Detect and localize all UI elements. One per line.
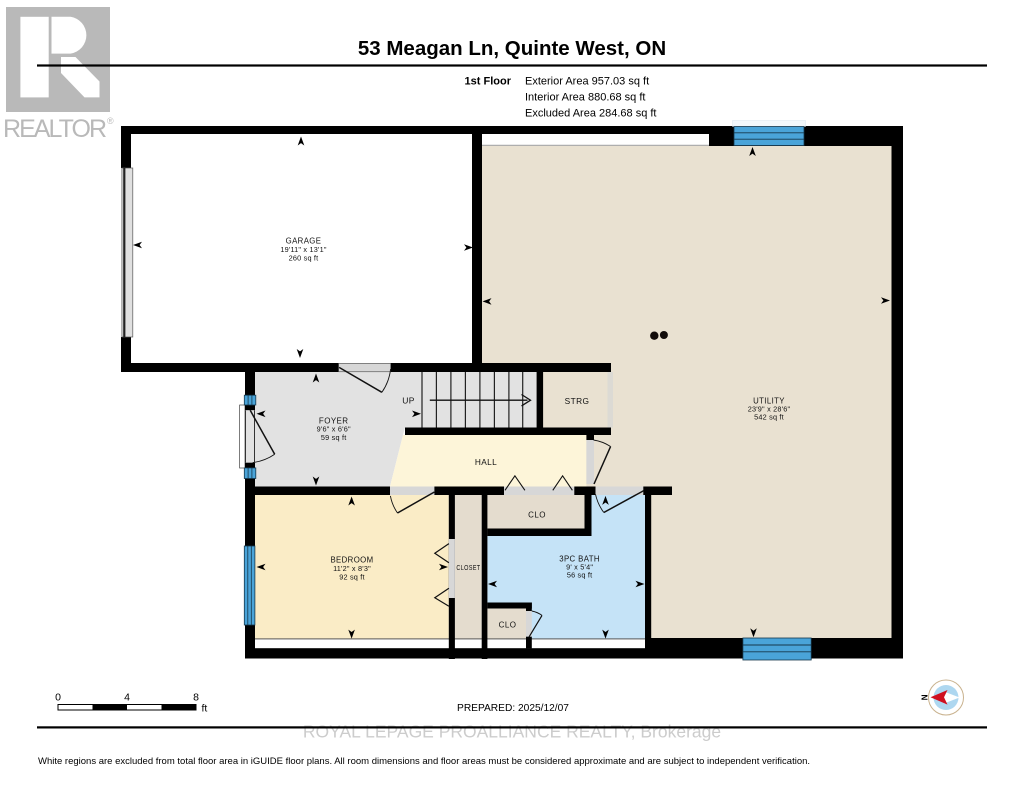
svg-text:CLO: CLO bbox=[499, 621, 517, 630]
svg-text:N: N bbox=[920, 695, 929, 701]
svg-text:PREPARED: 2025/12/07: PREPARED: 2025/12/07 bbox=[457, 703, 569, 714]
svg-text:4: 4 bbox=[124, 692, 130, 704]
svg-text:0: 0 bbox=[55, 692, 61, 704]
svg-text:260 sq ft: 260 sq ft bbox=[289, 254, 319, 263]
svg-text:53 Meagan Ln, Quinte West, ON: 53 Meagan Ln, Quinte West, ON bbox=[358, 37, 666, 60]
svg-text:CLO: CLO bbox=[528, 511, 546, 520]
svg-text:Interior Area 880.68 sq ft: Interior Area 880.68 sq ft bbox=[525, 92, 645, 104]
svg-text:CLOSET: CLOSET bbox=[456, 565, 480, 572]
svg-text:56 sq ft: 56 sq ft bbox=[567, 571, 593, 580]
svg-text:STRG: STRG bbox=[565, 396, 590, 406]
svg-text:92 sq ft: 92 sq ft bbox=[339, 573, 365, 582]
svg-text:ft: ft bbox=[202, 703, 208, 715]
svg-text:UP: UP bbox=[402, 396, 415, 406]
svg-text:Exterior Area 957.03 sq ft: Exterior Area 957.03 sq ft bbox=[525, 76, 649, 88]
svg-text:542 sq ft: 542 sq ft bbox=[754, 413, 784, 422]
svg-text:ROYAL LEPAGE PROALLIANCE REALT: ROYAL LEPAGE PROALLIANCE REALTY, Brokera… bbox=[303, 722, 721, 742]
svg-text:REALTOR: REALTOR bbox=[3, 115, 107, 143]
svg-text:®: ® bbox=[107, 116, 114, 126]
svg-text:White regions are excluded fro: White regions are excluded from total fl… bbox=[38, 756, 810, 767]
svg-text:59 sq ft: 59 sq ft bbox=[321, 433, 347, 442]
svg-text:HALL: HALL bbox=[475, 457, 497, 467]
svg-text:Excluded Area 284.68 sq ft: Excluded Area 284.68 sq ft bbox=[525, 108, 656, 120]
svg-text:1st Floor: 1st Floor bbox=[465, 76, 512, 88]
svg-text:8: 8 bbox=[193, 692, 199, 704]
